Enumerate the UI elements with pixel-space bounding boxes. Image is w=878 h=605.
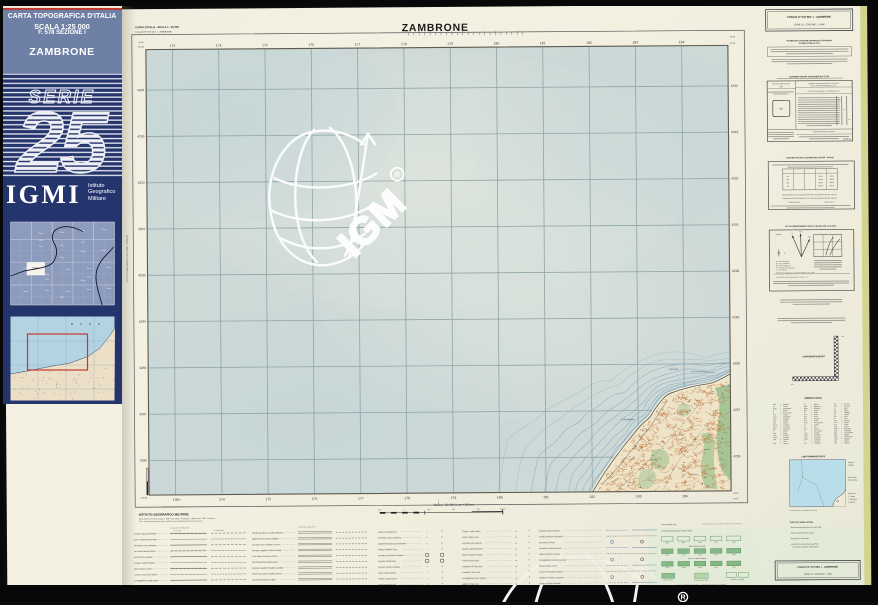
svg-text:R: R [680, 595, 685, 602]
